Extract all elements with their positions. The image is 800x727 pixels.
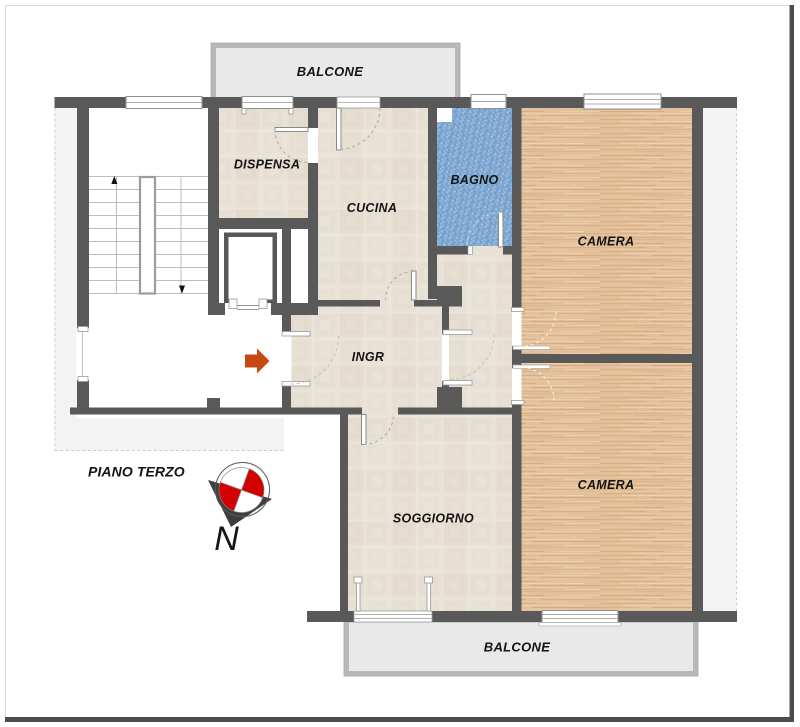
svg-text:SOGGIORNO: SOGGIORNO	[393, 512, 474, 526]
svg-text:DISPENSA: DISPENSA	[234, 158, 300, 172]
svg-text:N: N	[214, 520, 239, 558]
svg-text:BAGNO: BAGNO	[450, 173, 498, 187]
svg-text:CAMERA: CAMERA	[578, 235, 635, 249]
svg-text:CUCINA: CUCINA	[347, 201, 397, 215]
svg-text:BALCONE: BALCONE	[484, 640, 550, 655]
svg-text:INGR: INGR	[352, 350, 384, 364]
svg-text:BALCONE: BALCONE	[297, 64, 363, 79]
svg-text:CAMERA: CAMERA	[578, 478, 635, 492]
svg-text:PIANO TERZO: PIANO TERZO	[88, 464, 185, 480]
